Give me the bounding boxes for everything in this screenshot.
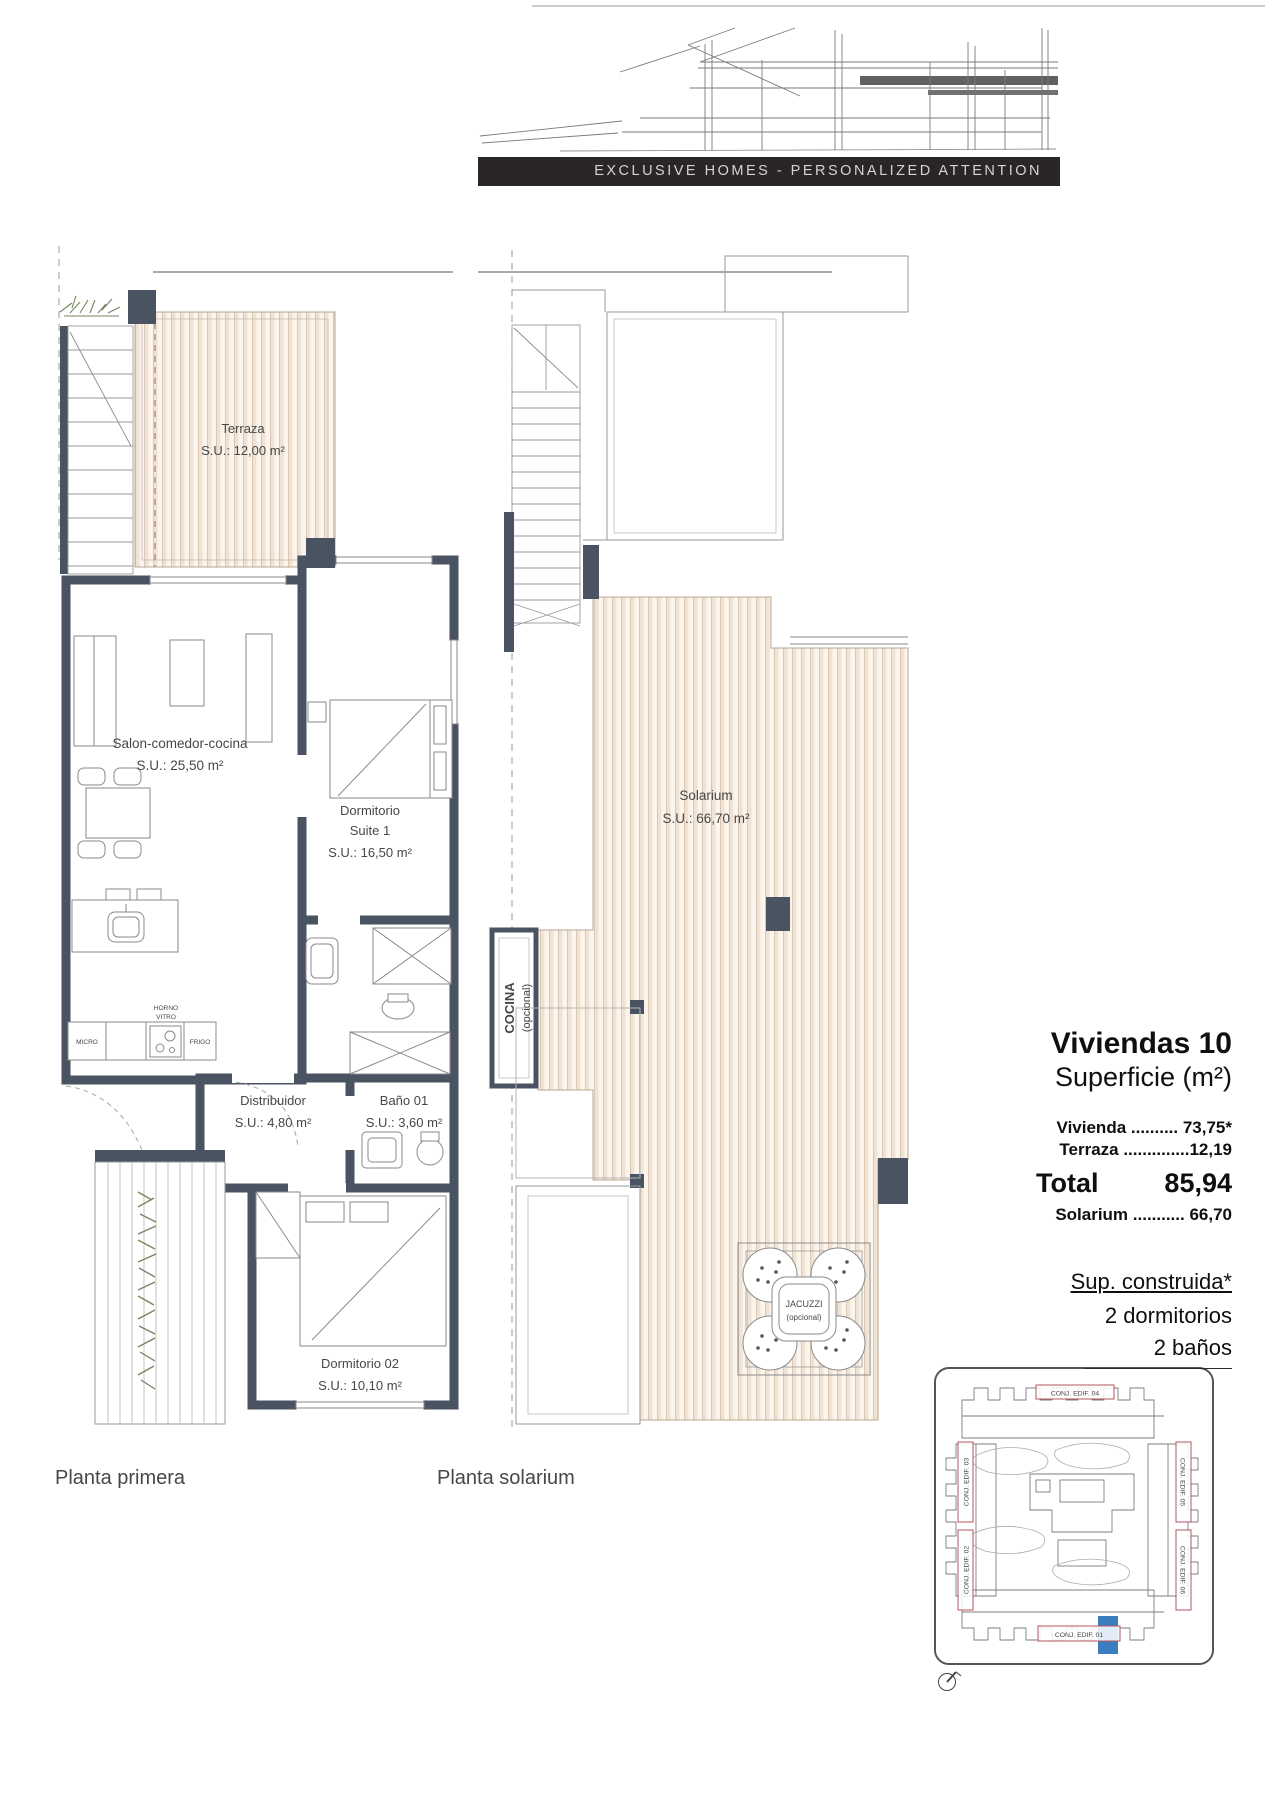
suite-area: S.U.: 16,50 m² <box>328 845 412 860</box>
panel-rule <box>1084 1368 1232 1369</box>
jacuzzi-opcional-label: (opcional) <box>786 1313 821 1322</box>
dorm02-area: S.U.: 10,10 m² <box>318 1378 402 1393</box>
plan-solarium: Solarium S.U.: 66,70 m² COCINA (opcional… <box>437 250 908 1489</box>
header-sketch <box>480 6 1265 151</box>
site-label-edif05: CONJ. EDIF. 05 <box>1179 1458 1186 1507</box>
cocina-label: COCINA <box>502 982 517 1034</box>
stairs-solarium <box>512 325 580 626</box>
row-solarium: Solarium ........... 66,70 <box>932 1205 1232 1225</box>
suite-label2: Suite 1 <box>350 823 390 838</box>
dormitorios-count: 2 dormitorios <box>932 1303 1232 1329</box>
bano01-area: S.U.: 3,60 m² <box>366 1115 443 1130</box>
panel-subtitle: Superficie (m²) <box>932 1062 1232 1093</box>
info-panel: Viviendas 10 Superficie (m²) Vivienda ..… <box>932 1028 1232 1369</box>
site-label-edif04: CONJ. EDIF. 04 <box>1051 1391 1100 1398</box>
wall-stair-left <box>504 512 514 652</box>
salon-area: S.U.: 25,50 m² <box>136 758 224 773</box>
compass-icon <box>939 1672 962 1691</box>
vitro-label: VITRO <box>156 1014 176 1021</box>
site-map: CONJ. EDIF. 04 CONJ. EDIF. 01 CONJ. EDIF… <box>935 1368 1213 1691</box>
header-banner: EXCLUSIVE HOMES - PERSONALIZED ATTENTION <box>478 157 1060 186</box>
stairwell-bottom <box>95 1150 225 1424</box>
row-terraza: Terraza ..............12,19 <box>932 1139 1232 1162</box>
dorm02-label: Dormitorio 02 <box>321 1356 399 1371</box>
bano01-fixtures <box>362 1132 443 1168</box>
micro-label: MICRO <box>76 1039 98 1046</box>
salon-label: Salon-comedor-cocina <box>112 736 248 751</box>
brochure-page: Terraza S.U.: 12,00 m² <box>0 0 1280 1811</box>
living-furniture <box>72 634 272 952</box>
plant-icon <box>60 296 120 316</box>
distribuidor-label: Distribuidor <box>240 1093 306 1108</box>
site-label-edif01: CONJ. EDIF. 01 <box>1055 1632 1104 1639</box>
site-label-edif02: CONJ. EDIF. 02 <box>964 1546 971 1595</box>
row-vivienda: Vivienda .......... 73,75* <box>932 1117 1232 1140</box>
plan-primera: Terraza S.U.: 12,00 m² <box>55 246 459 1489</box>
ensuite-fixtures <box>306 928 451 1074</box>
stairs-top <box>68 326 133 574</box>
row-total: Total 85,94 <box>1036 1168 1232 1199</box>
frigo-label: FRIGO <box>190 1039 211 1046</box>
dorm02-furniture <box>256 1192 446 1346</box>
terraza-label: Terraza <box>221 421 265 436</box>
solarium-label: Solarium <box>679 788 732 803</box>
site-label-edif06: CONJ. EDIF. 06 <box>1179 1546 1186 1595</box>
jacuzzi-label: JACUZZI <box>786 1299 823 1309</box>
total-value: 85,94 <box>1164 1168 1232 1199</box>
suite-label1: Dormitorio <box>340 803 400 818</box>
panel-title: Viviendas 10 <box>932 1028 1232 1060</box>
sup-construida: Sup. construida* <box>932 1269 1232 1295</box>
banos-count: 2 baños <box>932 1335 1232 1361</box>
terraza-deck: Terraza S.U.: 12,00 m² <box>135 312 335 567</box>
distribuidor-area: S.U.: 4,80 m² <box>235 1115 312 1130</box>
terraza-area: S.U.: 12,00 m² <box>201 443 285 458</box>
caption-planta-primera: Planta primera <box>55 1467 186 1489</box>
floorplan-drawing: Terraza S.U.: 12,00 m² <box>0 0 1280 1811</box>
bano01-label: Baño 01 <box>380 1093 428 1108</box>
caption-planta-solarium: Planta solarium <box>437 1467 575 1489</box>
solarium-area: S.U.: 66,70 m² <box>662 811 750 826</box>
site-label-edif03: CONJ. EDIF. 03 <box>964 1458 971 1507</box>
total-label: Total <box>1036 1168 1099 1199</box>
banner-text: EXCLUSIVE HOMES - PERSONALIZED ATTENTION <box>594 163 1042 179</box>
horno-label: HORNO <box>154 1005 178 1012</box>
suite-furniture <box>308 700 452 798</box>
